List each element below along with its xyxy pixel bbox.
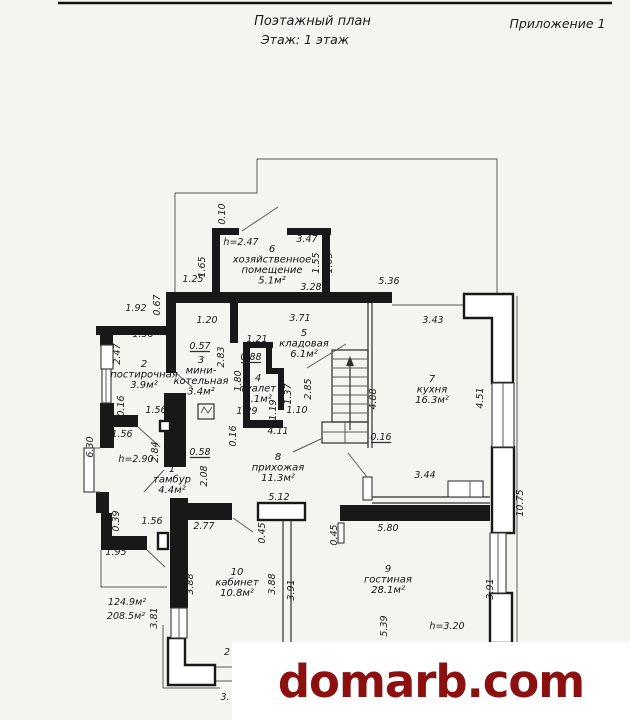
dimension-label: 3.81 <box>149 607 160 628</box>
dimension-label: 0.57 <box>189 341 210 352</box>
door-entry <box>147 550 165 567</box>
dimension-label: 3.91 <box>485 578 496 599</box>
dimension-label: 3.71 <box>289 313 310 324</box>
total-area-label: 208.5м² <box>107 611 145 622</box>
height-note: h=2.90 <box>118 454 153 465</box>
dimension-label: 5.39 <box>379 615 390 636</box>
watermark-band: domarb.com <box>232 642 630 720</box>
dimension-label: 2.83 <box>216 346 227 367</box>
room-10-kabinet-label: 10кабинет10.8м² <box>215 567 260 599</box>
dimension-label: 3.47 <box>296 234 317 245</box>
dimension-label: 0.88 <box>240 352 261 363</box>
dimension-label: 1.95 <box>105 547 126 558</box>
dimension-label: 3.88 <box>267 573 278 594</box>
dimension-label: 1.20 <box>196 315 217 326</box>
dimension-label: 6.30 <box>85 436 96 457</box>
dimension-label: 3. <box>220 692 229 703</box>
dimension-label: 3.88 <box>185 573 196 594</box>
room-1-tambur-label: 1тамбур4.4м² <box>153 464 191 496</box>
dimension-label: 3.43 <box>422 315 443 326</box>
dimension-label: 2.77 <box>193 521 214 532</box>
watermark-logo: domarb.com <box>278 655 584 708</box>
dimension-label: 1.65 <box>324 252 335 273</box>
dimension-label: 1.10 <box>286 405 307 416</box>
dimension-label: 4.51 <box>475 387 486 408</box>
dimension-label: 1.56 <box>141 516 162 527</box>
height-note: h=2.47 <box>223 237 258 248</box>
dimension-label: 1.56 <box>132 329 153 340</box>
dimension-label: 4.11 <box>267 426 288 437</box>
dimension-label: 2 <box>224 647 230 658</box>
walls <box>96 228 490 608</box>
dimension-label: 1.80 <box>233 370 244 391</box>
dimension-label: 2.85 <box>303 378 314 399</box>
floor-plan-drawing: 1тамбур4.4м²2постирочная3.9м²3мини-котел… <box>0 0 630 720</box>
room-7-kukhnya-label: 7кухня16.3м² <box>415 374 449 406</box>
dimension-label: 0.87 <box>230 317 241 338</box>
dimension-label: 0.39 <box>111 510 122 531</box>
door-hall-east <box>293 438 323 452</box>
scanned-floor-plan-page: { "header": { "title": "Поэтажный план",… <box>0 0 630 720</box>
kitchen-counter <box>448 481 483 497</box>
dimension-label: 3.91 <box>286 579 297 600</box>
dimension-label: 0.58 <box>189 447 210 458</box>
dimension-label: 1.56 <box>111 429 132 440</box>
dimension-label: 1.92 <box>125 303 146 314</box>
dimension-label: 5.12 <box>268 492 289 503</box>
room-8-prikhozhaya-label: 8прихожая11.3м² <box>252 452 305 484</box>
room-6-khozpomeshchenie-label: 6хозяйственноепомещение5.1м² <box>232 244 312 287</box>
dimension-label: 1.56 <box>145 405 166 416</box>
dimension-label: 5.80 <box>377 523 398 534</box>
dimension-label: 0.45 <box>329 524 340 545</box>
dimension-label: 5.36 <box>378 276 399 287</box>
dimension-label: 1.19 <box>268 399 279 420</box>
dimension-label: 1.37 <box>283 383 294 404</box>
door-kabinet <box>233 518 253 532</box>
boiler-icon <box>198 404 214 419</box>
dimension-label: 0.16 <box>228 425 239 446</box>
dimension-label: 0.45 <box>257 522 268 543</box>
total-area-label: 124.9м² <box>108 597 146 608</box>
dimension-label: 2.47 <box>112 343 123 364</box>
dimension-label: 0.16 <box>116 395 127 416</box>
room-9-gostinaya-label: 9гостиная28.1м² <box>364 564 412 596</box>
dimension-label: 2.08 <box>199 465 210 486</box>
dimension-label: 3.44 <box>414 470 435 481</box>
dimension-label: 0.67 <box>152 294 163 315</box>
room-5-kladovaya-label: 5кладовая6.1м² <box>279 328 329 360</box>
door-room6 <box>242 207 278 231</box>
dimension-label: 0.16 <box>370 432 391 443</box>
dimension-label: 1.25 <box>182 274 203 285</box>
dimension-label: 4.88 <box>368 388 379 409</box>
dimension-label: 0.10 <box>217 203 228 224</box>
dimension-label: 1.29 <box>236 406 257 417</box>
dimension-label: 3.28 <box>300 282 321 293</box>
height-note: h=3.20 <box>429 621 464 632</box>
dimension-label: 1.21 <box>246 334 267 345</box>
dimension-label: 1.55 <box>311 252 322 273</box>
dimension-label: 10.75 <box>515 489 526 516</box>
door-kitchen <box>348 453 367 477</box>
dimension-labels: 0.103.47h=2.471.651.551.651.253.285.361.… <box>85 203 526 703</box>
